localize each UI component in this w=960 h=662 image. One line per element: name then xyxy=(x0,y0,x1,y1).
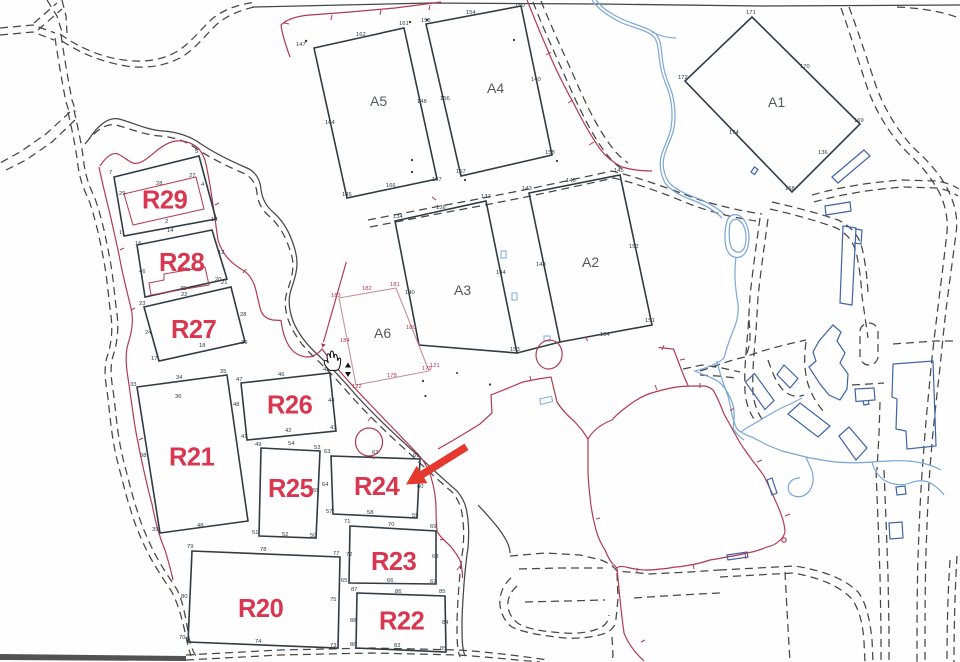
svg-text:36: 36 xyxy=(175,394,181,400)
svg-text:80: 80 xyxy=(181,594,187,600)
svg-text:38: 38 xyxy=(140,453,146,459)
svg-text:136: 136 xyxy=(818,150,828,156)
svg-text:84: 84 xyxy=(442,620,449,626)
svg-text:166: 166 xyxy=(386,183,396,189)
svg-text:16: 16 xyxy=(135,241,141,247)
svg-text:R24: R24 xyxy=(354,473,401,501)
svg-text:156: 156 xyxy=(440,96,450,102)
svg-text:22: 22 xyxy=(181,292,187,298)
svg-text:68: 68 xyxy=(432,554,438,560)
svg-text:144: 144 xyxy=(496,270,506,276)
svg-text:R22: R22 xyxy=(379,608,425,636)
svg-text:35: 35 xyxy=(220,369,226,375)
svg-text:172: 172 xyxy=(678,75,688,81)
svg-text:161: 161 xyxy=(399,21,409,27)
svg-text:174: 174 xyxy=(729,130,739,136)
svg-text:171: 171 xyxy=(746,10,756,16)
svg-text:168: 168 xyxy=(785,186,795,192)
svg-text:R21: R21 xyxy=(169,444,215,472)
svg-text:65: 65 xyxy=(341,578,347,584)
svg-text:17: 17 xyxy=(151,356,157,362)
svg-text:140: 140 xyxy=(531,77,541,83)
svg-text:21: 21 xyxy=(221,280,227,286)
svg-text:140: 140 xyxy=(405,290,415,296)
svg-text:63: 63 xyxy=(324,449,330,455)
svg-text:A3: A3 xyxy=(454,282,471,298)
svg-text:122: 122 xyxy=(352,384,362,390)
svg-text:1: 1 xyxy=(119,230,122,236)
svg-text:48: 48 xyxy=(233,402,239,408)
svg-text:58: 58 xyxy=(367,510,373,516)
svg-text:87: 87 xyxy=(351,587,357,593)
svg-text:61: 61 xyxy=(413,453,419,459)
svg-text:60: 60 xyxy=(417,484,423,490)
svg-text:182: 182 xyxy=(362,286,372,292)
svg-text:28: 28 xyxy=(240,312,246,318)
svg-text:145: 145 xyxy=(342,192,352,198)
svg-text:85: 85 xyxy=(440,646,446,652)
svg-text:154: 154 xyxy=(466,10,476,16)
svg-text:R23: R23 xyxy=(371,548,417,576)
svg-text:157: 157 xyxy=(456,169,466,175)
svg-text:158: 158 xyxy=(545,150,555,156)
svg-text:R27: R27 xyxy=(171,316,217,344)
svg-text:121: 121 xyxy=(430,363,440,369)
svg-text:70: 70 xyxy=(388,522,394,528)
svg-text:83: 83 xyxy=(394,643,400,649)
svg-text:169: 169 xyxy=(854,118,864,124)
svg-text:A5: A5 xyxy=(370,93,387,109)
svg-text:74: 74 xyxy=(255,639,262,645)
svg-text:154: 154 xyxy=(600,332,610,338)
svg-text:5: 5 xyxy=(195,149,198,155)
svg-text:7: 7 xyxy=(109,170,112,176)
svg-text:A1: A1 xyxy=(768,94,785,110)
svg-text:69: 69 xyxy=(430,524,436,530)
svg-text:12: 12 xyxy=(218,250,224,256)
svg-text:167: 167 xyxy=(432,177,442,183)
svg-text:54: 54 xyxy=(288,441,295,447)
svg-text:30: 30 xyxy=(241,340,247,346)
svg-text:143: 143 xyxy=(522,186,532,192)
svg-text:46: 46 xyxy=(278,372,284,378)
svg-text:52: 52 xyxy=(282,532,288,538)
svg-text:A6: A6 xyxy=(374,325,391,341)
svg-text:79: 79 xyxy=(187,544,193,550)
svg-text:137: 137 xyxy=(481,194,491,200)
svg-text:53: 53 xyxy=(314,445,320,451)
svg-text:170: 170 xyxy=(800,64,810,70)
svg-text:88: 88 xyxy=(350,618,356,624)
svg-text:51: 51 xyxy=(252,530,258,536)
svg-text:151: 151 xyxy=(645,318,655,324)
svg-text:134: 134 xyxy=(393,214,403,220)
svg-text:A2: A2 xyxy=(582,254,599,270)
svg-text:164: 164 xyxy=(325,120,335,126)
svg-text:R20: R20 xyxy=(238,595,284,623)
svg-text:14: 14 xyxy=(167,228,174,234)
svg-text:33: 33 xyxy=(130,382,136,388)
svg-text:41: 41 xyxy=(241,434,247,440)
svg-text:R26: R26 xyxy=(267,392,313,420)
svg-text:R29: R29 xyxy=(142,187,188,215)
svg-text:148: 148 xyxy=(536,262,546,268)
svg-text:66: 66 xyxy=(387,578,393,584)
svg-text:43: 43 xyxy=(330,425,336,431)
svg-text:86: 86 xyxy=(395,589,401,595)
svg-text:A4: A4 xyxy=(487,80,504,96)
svg-text:23: 23 xyxy=(139,301,145,307)
svg-text:29: 29 xyxy=(119,191,125,197)
svg-text:48: 48 xyxy=(197,523,203,529)
svg-text:R28: R28 xyxy=(159,249,205,277)
svg-text:2: 2 xyxy=(165,219,168,225)
svg-text:78: 78 xyxy=(260,547,266,553)
svg-text:50: 50 xyxy=(310,533,316,539)
svg-text:153: 153 xyxy=(510,347,520,353)
svg-text:24: 24 xyxy=(145,330,152,336)
svg-text:136: 136 xyxy=(436,205,446,211)
svg-text:57: 57 xyxy=(326,509,332,515)
svg-text:183: 183 xyxy=(331,293,341,299)
svg-text:88: 88 xyxy=(350,642,356,648)
svg-text:77: 77 xyxy=(333,551,339,557)
svg-text:147: 147 xyxy=(296,42,306,48)
svg-text:47: 47 xyxy=(236,377,242,383)
svg-text:13: 13 xyxy=(211,217,217,223)
svg-text:181: 181 xyxy=(390,282,400,288)
svg-text:162: 162 xyxy=(356,32,366,38)
svg-text:145: 145 xyxy=(614,168,624,174)
svg-text:152: 152 xyxy=(629,244,639,250)
svg-text:184: 184 xyxy=(340,338,350,344)
svg-text:64: 64 xyxy=(322,482,329,488)
svg-text:73: 73 xyxy=(330,643,336,649)
svg-text:85: 85 xyxy=(439,589,445,595)
svg-text:75: 75 xyxy=(330,597,336,603)
svg-text:180: 180 xyxy=(406,325,416,331)
svg-text:34: 34 xyxy=(176,375,183,381)
svg-text:146: 146 xyxy=(566,178,576,184)
svg-text:70: 70 xyxy=(179,635,185,641)
svg-text:44: 44 xyxy=(328,398,335,404)
svg-text:42: 42 xyxy=(285,428,291,434)
svg-text:55: 55 xyxy=(313,488,319,494)
svg-text:27: 27 xyxy=(189,173,195,179)
svg-text:46: 46 xyxy=(139,269,145,275)
svg-text:178: 178 xyxy=(387,373,397,379)
svg-text:148: 148 xyxy=(417,99,427,105)
svg-text:150: 150 xyxy=(515,3,525,9)
svg-text:R25: R25 xyxy=(268,475,314,503)
svg-text:49: 49 xyxy=(255,442,261,448)
svg-text:71: 71 xyxy=(344,519,350,525)
svg-text:67: 67 xyxy=(430,579,436,585)
svg-text:59: 59 xyxy=(412,513,418,519)
svg-text:39: 39 xyxy=(152,527,158,533)
svg-text:155: 155 xyxy=(421,18,431,24)
svg-text:72: 72 xyxy=(346,552,352,558)
